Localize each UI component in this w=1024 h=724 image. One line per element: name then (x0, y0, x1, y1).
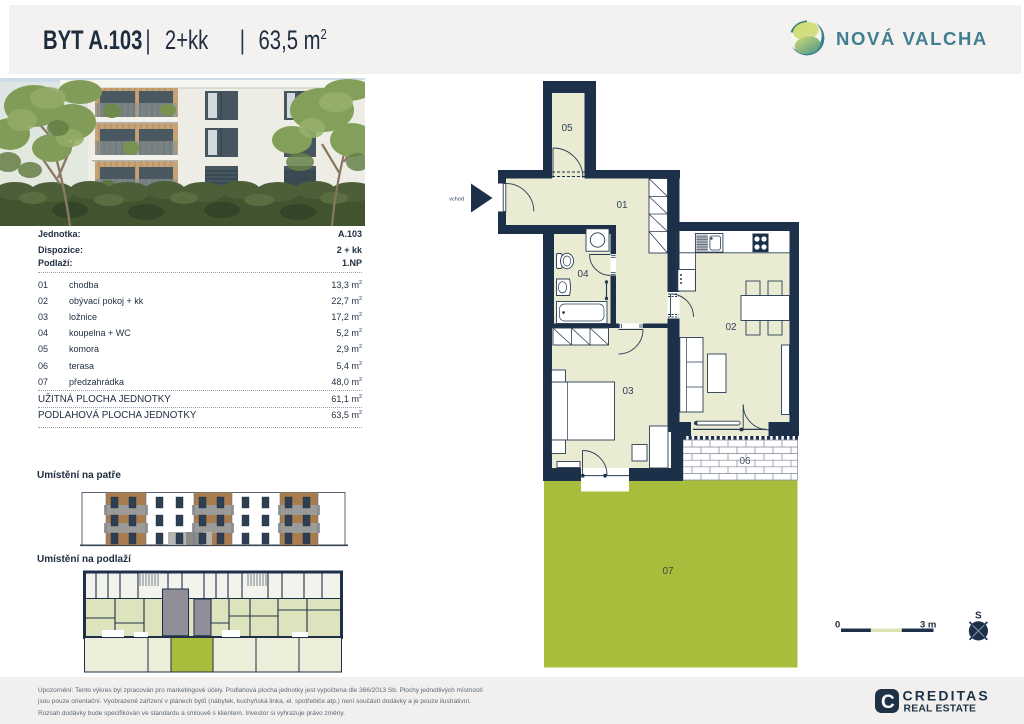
svg-text:01: 01 (616, 200, 628, 211)
svg-text:vchod: vchod (449, 196, 464, 202)
svg-text:CREDITAS: CREDITAS (903, 688, 990, 704)
svg-text:REAL ESTATE: REAL ESTATE (904, 704, 977, 715)
svg-text:3 m: 3 m (920, 620, 936, 631)
svg-text:05: 05 (561, 123, 573, 134)
svg-text:C: C (881, 692, 895, 713)
svg-text:0: 0 (835, 620, 840, 631)
svg-text:NOVÁ VALCHA: NOVÁ VALCHA (836, 28, 988, 49)
svg-text:04: 04 (577, 269, 589, 280)
svg-text:06: 06 (739, 456, 751, 467)
svg-text:03: 03 (622, 386, 634, 397)
svg-text:02: 02 (725, 322, 737, 333)
svg-text:S: S (975, 611, 982, 622)
svg-text:07: 07 (662, 566, 674, 577)
